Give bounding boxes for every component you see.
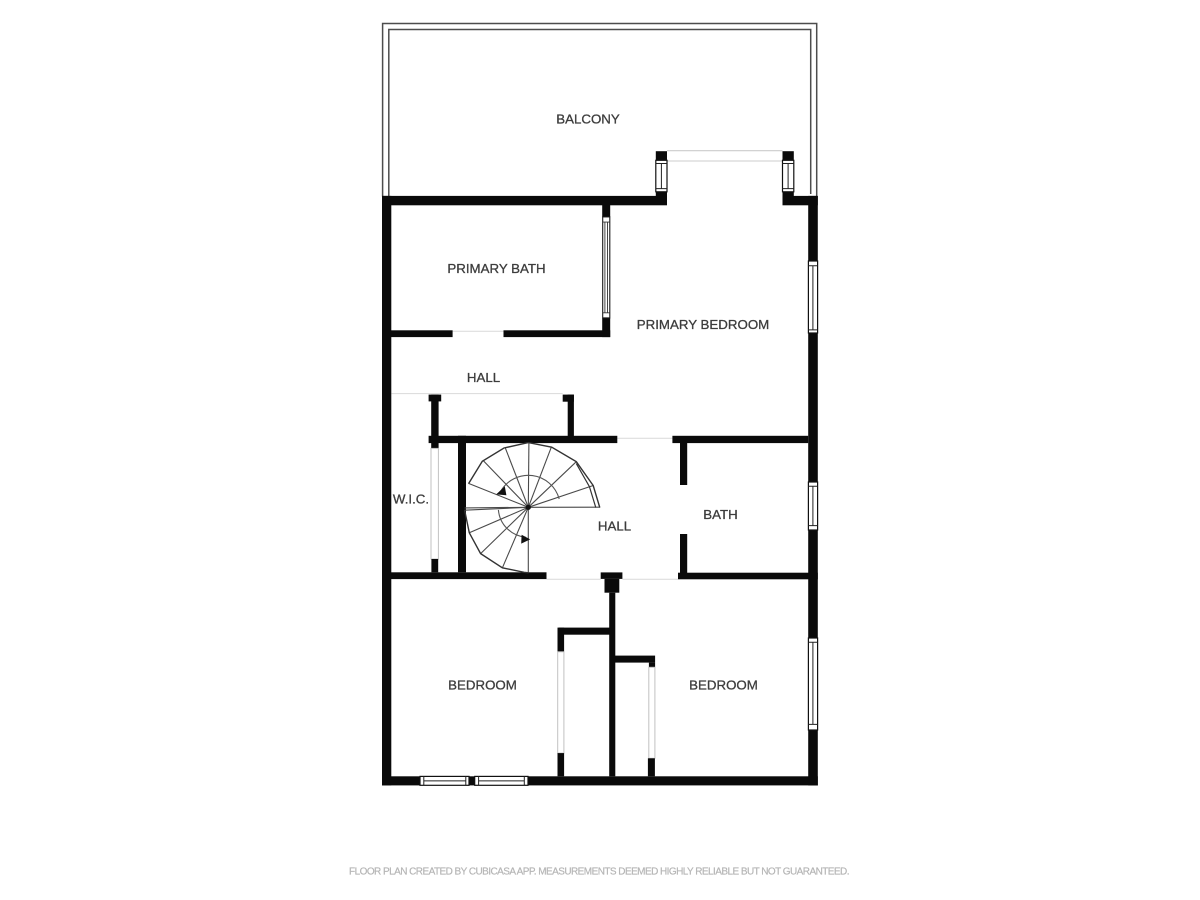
svg-text:PRIMARY BATH: PRIMARY BATH bbox=[447, 261, 545, 276]
svg-text:W.I.C.: W.I.C. bbox=[393, 492, 429, 507]
svg-text:HALL: HALL bbox=[467, 370, 500, 385]
svg-text:BALCONY: BALCONY bbox=[556, 111, 620, 126]
svg-text:PRIMARY BEDROOM: PRIMARY BEDROOM bbox=[637, 317, 770, 332]
svg-text:BEDROOM: BEDROOM bbox=[689, 678, 758, 693]
svg-text:HALL: HALL bbox=[598, 518, 631, 533]
svg-text:BEDROOM: BEDROOM bbox=[448, 678, 517, 693]
svg-text:BATH: BATH bbox=[703, 507, 737, 522]
svg-text:FLOOR PLAN CREATED BY CUBICASA: FLOOR PLAN CREATED BY CUBICASA APP. MEAS… bbox=[349, 867, 849, 878]
